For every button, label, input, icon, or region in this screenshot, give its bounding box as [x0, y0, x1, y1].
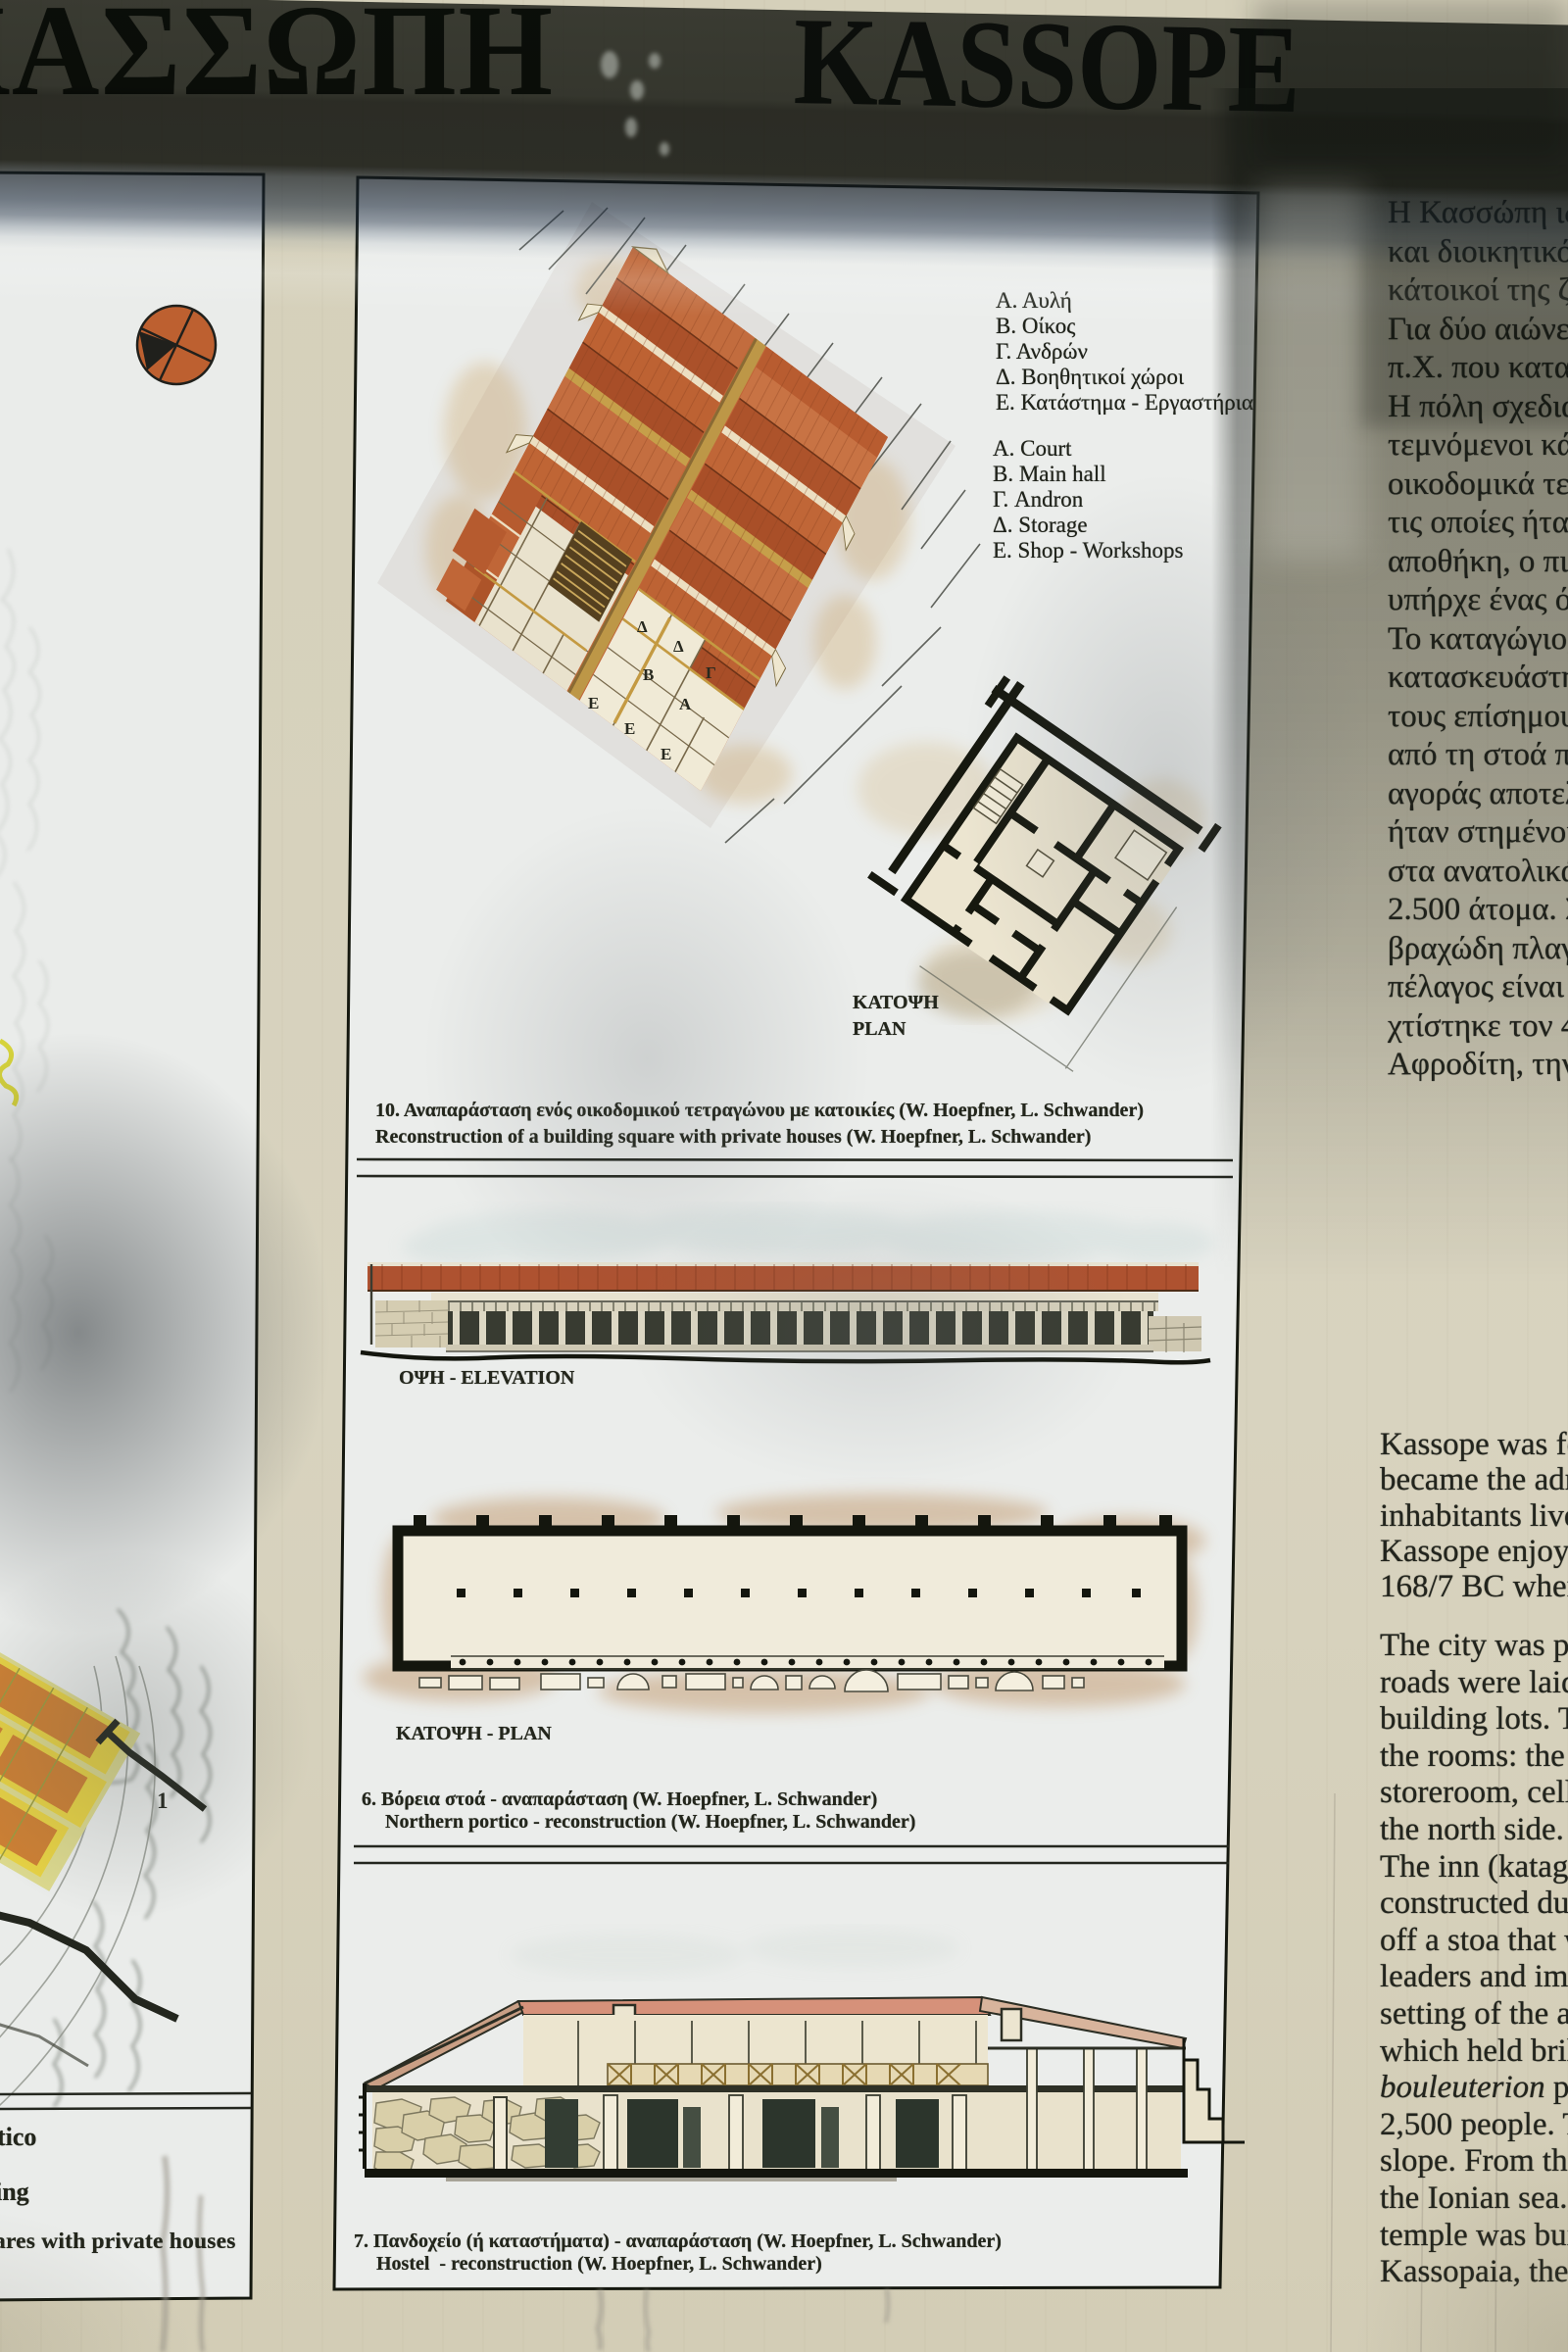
svg-text:1: 1 [157, 1788, 169, 1813]
svg-text:Δ: Δ [637, 617, 648, 636]
svg-text:Α: Α [679, 695, 692, 713]
svg-text:Γ: Γ [706, 663, 716, 682]
svg-text:Δ: Δ [673, 637, 684, 656]
svg-text:Ε: Ε [624, 719, 635, 738]
svg-text:Ε: Ε [588, 694, 599, 712]
svg-text:Ε: Ε [661, 745, 671, 763]
svg-text:Β: Β [643, 665, 654, 684]
